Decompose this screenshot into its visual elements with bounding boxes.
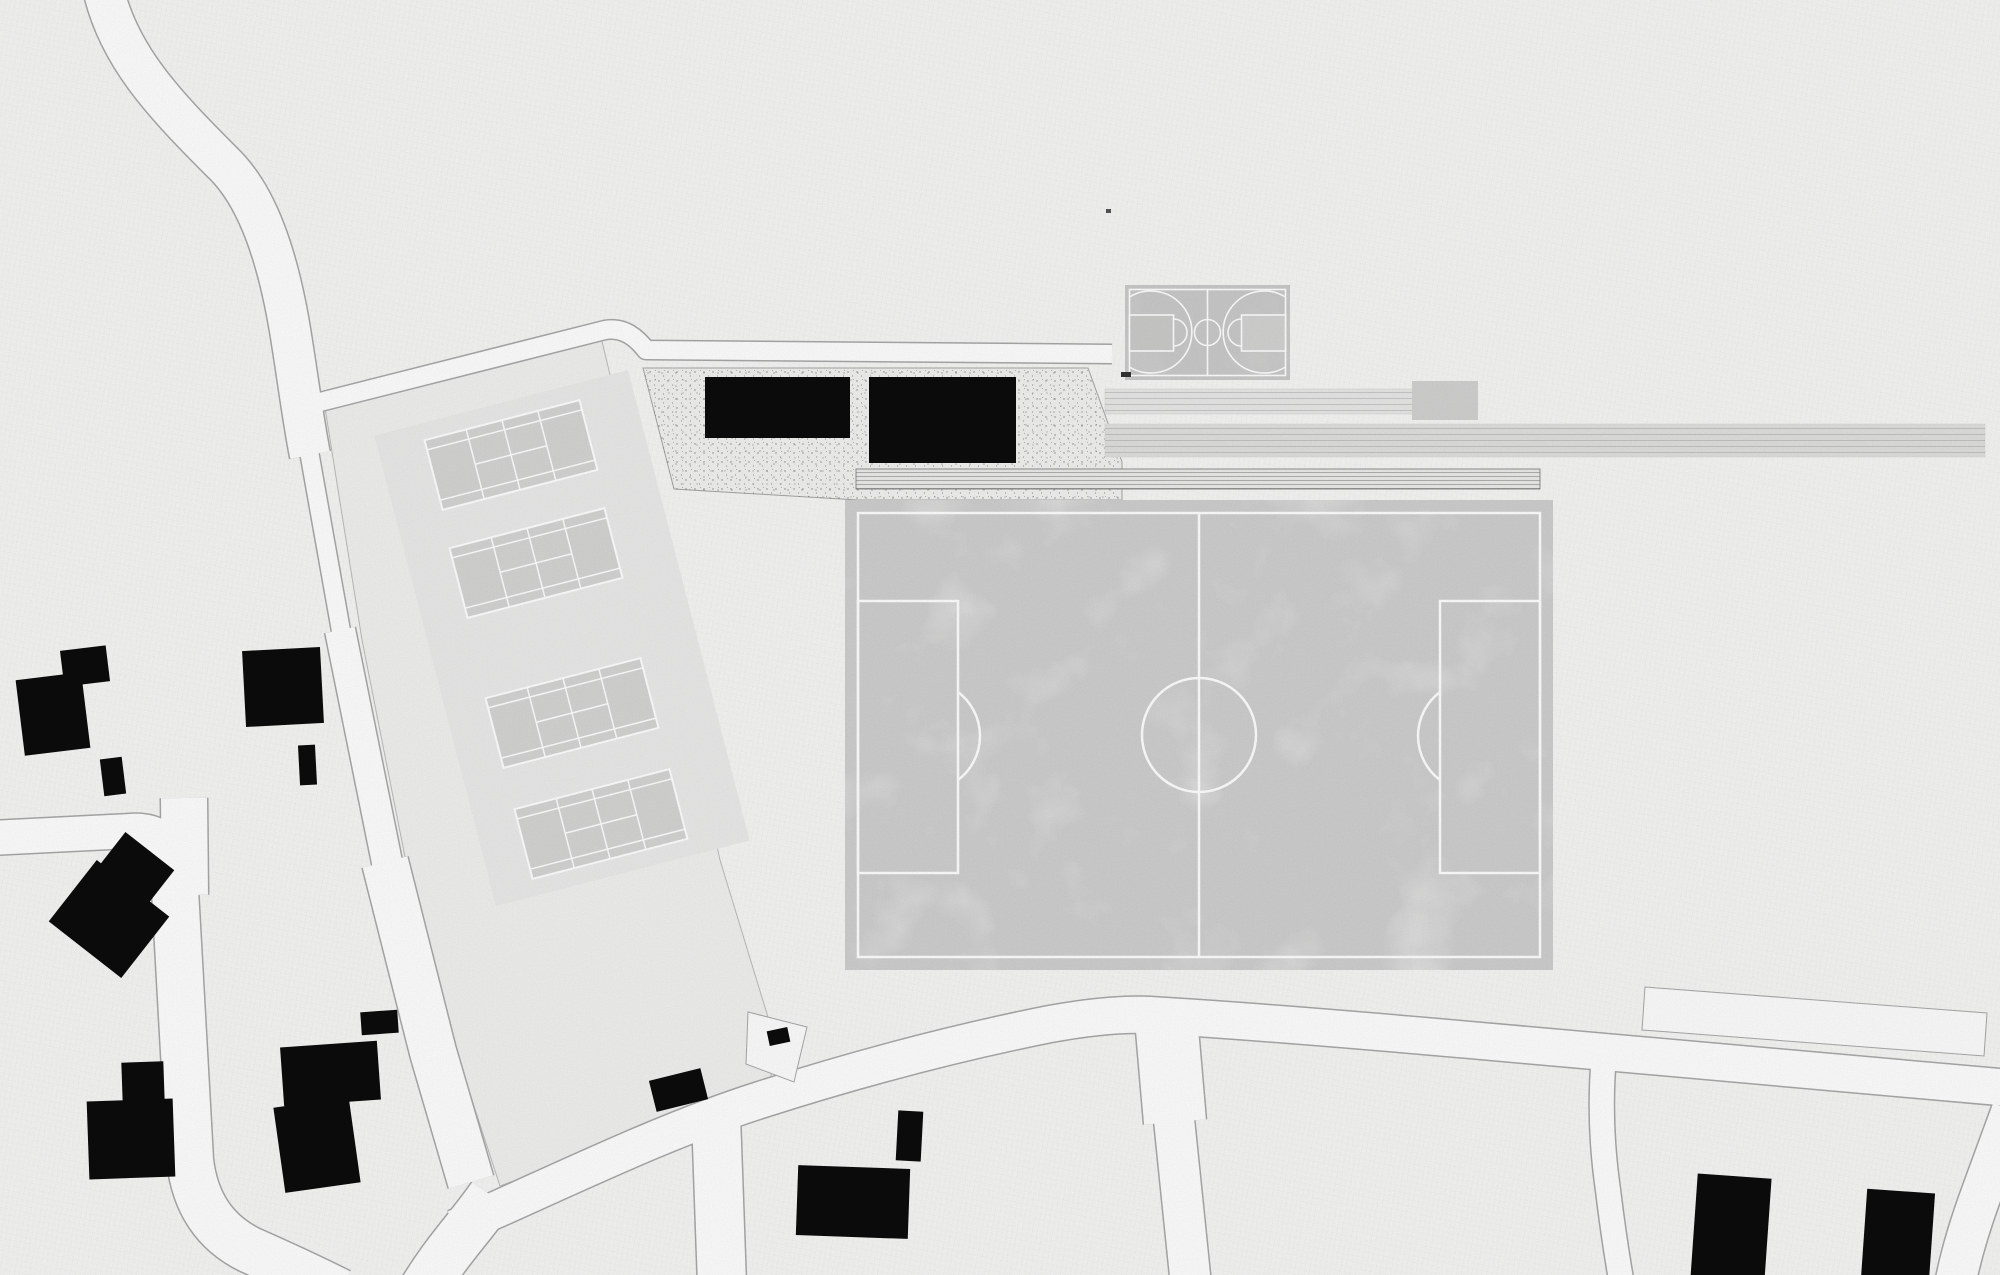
shed-footprint bbox=[298, 745, 317, 786]
shed-footprint bbox=[100, 757, 126, 796]
house-footprint bbox=[1690, 1174, 1771, 1275]
house-footprint bbox=[1861, 1189, 1935, 1275]
sports-hall-footprint bbox=[869, 377, 1016, 463]
shed-footprint bbox=[896, 1110, 924, 1161]
house-footprint bbox=[242, 647, 324, 727]
house-footprint bbox=[87, 1099, 176, 1180]
house-footprint bbox=[16, 672, 91, 755]
house-footprint bbox=[796, 1165, 910, 1239]
shed-footprint bbox=[360, 1010, 399, 1036]
house-footprint bbox=[273, 1097, 360, 1193]
house-footprint bbox=[121, 1061, 164, 1102]
house-footprint bbox=[280, 1041, 381, 1107]
sports-hall-footprint bbox=[705, 377, 850, 438]
site-plan-drawing bbox=[0, 0, 2000, 1275]
site-plan bbox=[0, 0, 2000, 1275]
